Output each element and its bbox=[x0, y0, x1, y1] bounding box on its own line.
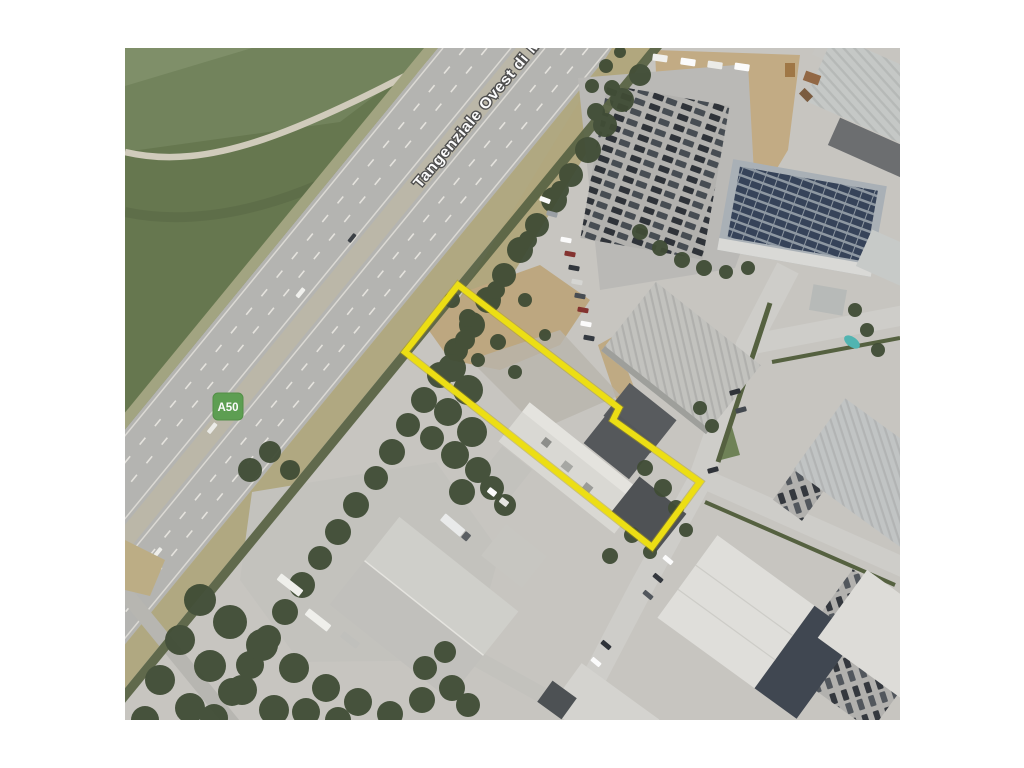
route-badge-text: A50 bbox=[217, 402, 238, 414]
route-badge: A50 bbox=[213, 393, 243, 420]
listing-satellite-image: Tangenziale Ovest di M A50 bbox=[0, 0, 1024, 768]
satellite-map: Tangenziale Ovest di M A50 bbox=[0, 0, 1024, 768]
